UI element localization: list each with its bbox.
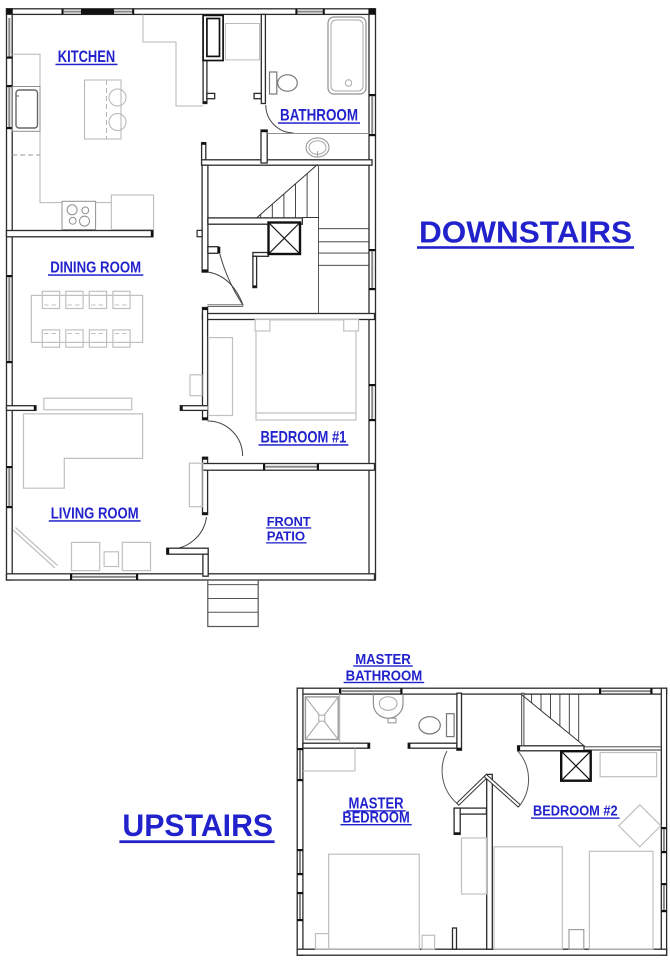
svg-text:BATHROOM: BATHROOM (280, 106, 358, 125)
svg-text:LIVING ROOM: LIVING ROOM (51, 505, 139, 522)
svg-text:KITCHEN: KITCHEN (58, 48, 115, 66)
svg-text:BEDROOM #2: BEDROOM #2 (533, 803, 618, 820)
svg-text:PATIO: PATIO (267, 528, 305, 543)
svg-text:FRONT: FRONT (267, 514, 311, 529)
svg-text:BEDROOM: BEDROOM (342, 809, 409, 826)
svg-text:BEDROOM #1: BEDROOM #1 (261, 428, 347, 446)
svg-text:DINING ROOM: DINING ROOM (50, 260, 141, 277)
svg-text:UPSTAIRS: UPSTAIRS (122, 807, 273, 843)
svg-text:DOWNSTAIRS: DOWNSTAIRS (419, 215, 632, 250)
